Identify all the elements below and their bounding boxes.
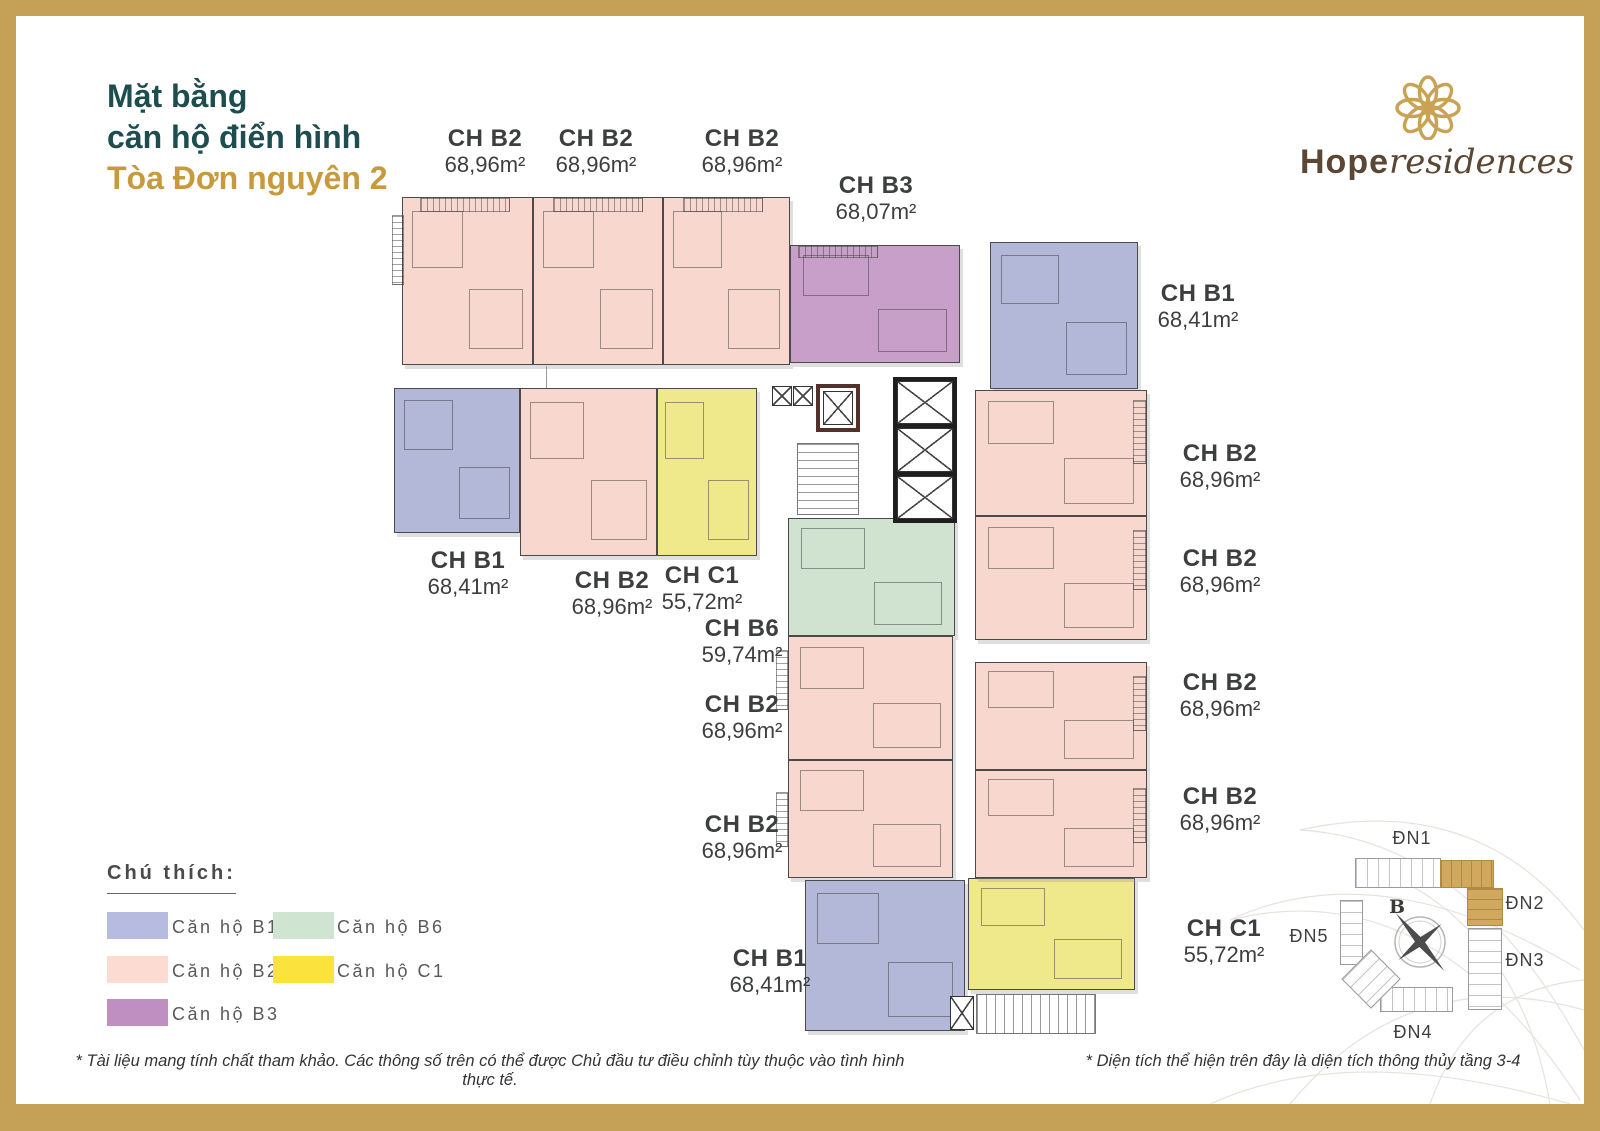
site-building-dn1 — [1355, 858, 1441, 888]
page-title: Mặt bằng căn hộ điển hình Tòa Đơn nguyên… — [107, 76, 388, 199]
unit-label-b2-mid-upper: CH B2 68,96m² — [652, 692, 832, 743]
staircase-icon — [976, 994, 1096, 1034]
brand-name-hope: Hope — [1300, 143, 1389, 181]
site-label-dn3: ĐN3 — [1505, 950, 1544, 971]
footnote-right: * Diện tích thể hiện trên đây là diện tí… — [1068, 1052, 1538, 1071]
unit-label-b2-mid-lower: CH B2 68,96m² — [652, 812, 832, 863]
unit-b1-mid-left — [394, 388, 520, 533]
unit-label-b1-bottom: CH B1 68,41m² — [680, 946, 860, 997]
unit-label-b6: CH B6 59,74m² — [652, 616, 832, 667]
hope-residences-knot-icon — [1394, 74, 1462, 140]
legend-swatch-b1 — [107, 912, 168, 939]
balcony-hatch — [392, 215, 404, 285]
unit-b2-right-3 — [975, 662, 1147, 770]
unit-c1-bottom — [968, 878, 1135, 990]
legend-label-c1: Căn hộ C1 — [337, 961, 446, 982]
unit-label-b2-right-4: CH B2 68,96m² — [1130, 784, 1310, 835]
unit-b2-right-1 — [975, 390, 1147, 516]
unit-label-b2-right-3: CH B2 68,96m² — [1130, 670, 1310, 721]
brand-name-residences: residences — [1389, 142, 1574, 182]
site-building-dn3 — [1468, 928, 1502, 1010]
legend-label-b6: Căn hộ B6 — [337, 917, 445, 938]
balcony-hatch — [420, 198, 510, 212]
compass-north-label: B — [1389, 896, 1405, 918]
footnote-left: * Tài liệu mang tính chất tham khảo. Các… — [60, 1052, 920, 1090]
site-label-dn4: ĐN4 — [1393, 1022, 1432, 1043]
unit-c1-mid — [657, 388, 757, 556]
balcony-hatch — [683, 198, 763, 212]
legend-swatch-b3 — [107, 999, 168, 1026]
legend-swatch-b2 — [107, 956, 168, 983]
staircase-icon — [797, 443, 859, 515]
site-building-dn2-horizontal — [1440, 860, 1494, 888]
vent-shaft-icon — [772, 386, 792, 406]
unit-label-b2-right-2: CH B2 68,96m² — [1130, 546, 1310, 597]
hope-residences-logo: Hoperesidences — [1300, 142, 1552, 182]
unit-label-c1-bottom: CH C1 55,72m² — [1134, 916, 1314, 967]
legend-label-b2: Căn hộ B2 — [172, 961, 280, 982]
legend-swatch-c1 — [273, 956, 334, 983]
elevator-icon — [816, 384, 860, 432]
unit-label-b2-right-1: CH B2 68,96m² — [1130, 441, 1310, 492]
balcony-hatch — [553, 198, 643, 212]
unit-label-b2-top-3: CH B2 68,96m² — [652, 126, 832, 177]
site-building-dn4 — [1380, 987, 1453, 1012]
balcony-hatch — [798, 246, 878, 258]
floorplan-page: Mặt bằng căn hộ điển hình Tòa Đơn nguyên… — [0, 0, 1600, 1131]
unit-b2-top-2 — [533, 197, 663, 365]
site-building-dn2-vertical — [1467, 888, 1503, 926]
legend-heading: Chú thích: — [107, 862, 236, 894]
unit-b2-right-4 — [975, 770, 1147, 878]
title-line-3: Tòa Đơn nguyên 2 — [107, 158, 388, 199]
legend-label-b1: Căn hộ B1 — [172, 917, 280, 938]
unit-b2-right-2 — [975, 516, 1147, 640]
unit-b2-mid-left — [520, 388, 657, 556]
site-label-dn1: ĐN1 — [1392, 828, 1431, 849]
unit-label-b1-right: CH B1 68,41m² — [1108, 281, 1288, 332]
legend-label-b3: Căn hộ B3 — [172, 1004, 280, 1025]
elevator-icon — [950, 996, 974, 1030]
unit-b3 — [790, 245, 960, 363]
site-label-dn2: ĐN2 — [1505, 893, 1544, 914]
title-line-1: Mặt bằng — [107, 76, 388, 117]
connector-line — [546, 366, 547, 388]
elevator-bank-icon — [893, 377, 957, 523]
unit-b2-top-3 — [663, 197, 790, 365]
unit-b2-top-1 — [402, 197, 533, 365]
unit-label-c1-mid: CH C1 55,72m² — [612, 563, 792, 614]
legend-swatch-b6 — [273, 912, 334, 939]
site-building-dn5 — [1340, 900, 1363, 965]
title-line-2: căn hộ điển hình — [107, 117, 388, 158]
vent-shaft-icon — [793, 386, 813, 406]
unit-label-b3: CH B3 68,07m² — [786, 173, 966, 224]
